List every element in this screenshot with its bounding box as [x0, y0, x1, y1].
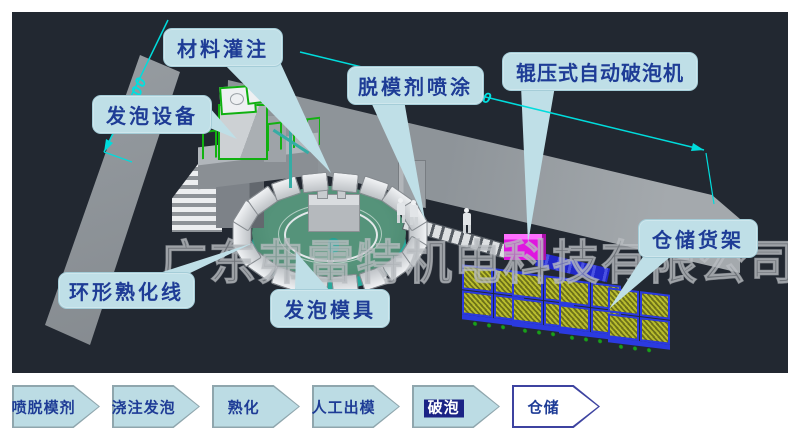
worker-torso: [410, 205, 418, 217]
flow-step-label: 熟化: [228, 396, 260, 417]
flow-step-label: 仓储: [528, 396, 560, 417]
callout-roller-breaker: 辊压式自动破泡机: [502, 52, 698, 91]
rack-cage: [608, 313, 639, 341]
callout-release-agent-spray: 脱模剂喷涂: [347, 66, 484, 105]
foaming-machine-hopper: [245, 76, 281, 105]
callout-storage-rack: 仓储货架: [638, 219, 758, 258]
flow-step-manual-demold: 人工出模: [312, 385, 400, 428]
worker-torso: [397, 203, 405, 215]
storage-rack-cluster: [608, 287, 670, 350]
worker-figure: [409, 200, 418, 225]
flow-step-spray-release-agent: 喷脱模剂: [12, 385, 100, 428]
flow-step-pour-foam: 浇注发泡: [112, 385, 200, 428]
rack-cage: [512, 297, 543, 325]
flow-step-foam-breaking: 破泡: [412, 385, 500, 428]
dimension-arrowhead: [691, 143, 704, 151]
callout-foam-mold: 发泡模具: [270, 289, 390, 328]
rack-cage: [640, 317, 671, 345]
flow-step-label: 喷脱模剂: [12, 396, 76, 417]
flow-step-label: 破泡: [424, 396, 464, 417]
rack-cage: [559, 304, 590, 332]
flow-step-highlight: 破泡: [424, 399, 464, 417]
flow-step-curing: 熟化: [212, 385, 300, 428]
cad-viewport: 广东弗雷特机电科技有限公司 000 00 材料灌注 脱模剂喷涂 辊压式自动破泡机: [12, 12, 788, 374]
flow-step-label: 人工出模: [312, 396, 376, 417]
process-flow-bar: 喷脱模剂 浇注发泡 熟化 人工出模 破泡 仓储: [0, 373, 800, 440]
mold-carrier: [331, 171, 359, 193]
mold-carrier: [301, 171, 329, 193]
flow-step-storage: 仓储: [512, 385, 600, 428]
rack-cage: [640, 291, 671, 319]
page: 广东弗雷特机电科技有限公司 000 00 材料灌注 脱模剂喷涂 辊压式自动破泡机: [0, 0, 800, 440]
callout-ring-curing-line: 环形熟化线: [58, 272, 195, 309]
worker-figure: [396, 198, 405, 223]
callout-foaming-equipment: 发泡设备: [92, 95, 212, 134]
worker-legs: [397, 215, 405, 223]
rack-cage: [462, 290, 493, 318]
flow-step-label: 浇注发泡: [112, 396, 176, 417]
callout-material-filling: 材料灌注: [163, 28, 283, 67]
